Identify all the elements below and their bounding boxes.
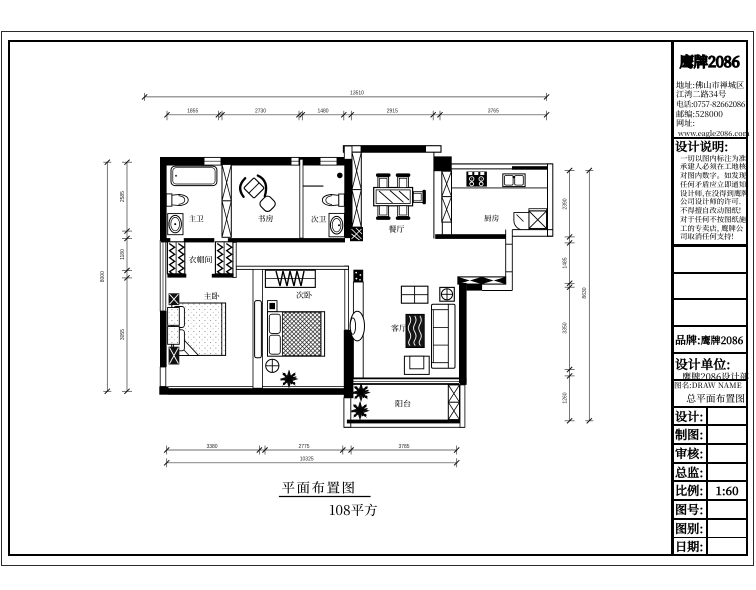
svg-text:主卫: 主卫 xyxy=(189,214,205,225)
svg-text:3055: 3055 xyxy=(120,329,126,340)
svg-text:108平方: 108平方 xyxy=(329,499,378,519)
svg-text:10325: 10325 xyxy=(300,457,314,463)
svg-text:1260: 1260 xyxy=(562,392,568,403)
svg-text:2775: 2775 xyxy=(298,444,309,450)
svg-text:2390: 2390 xyxy=(562,198,568,209)
svg-text:次卧: 次卧 xyxy=(296,290,312,301)
svg-text:2915: 2915 xyxy=(387,109,398,115)
svg-text:8630: 8630 xyxy=(582,287,588,298)
svg-text:3350: 3350 xyxy=(562,322,568,333)
svg-text:1855: 1855 xyxy=(187,109,198,115)
svg-text:3380: 3380 xyxy=(206,444,217,450)
svg-text:2730: 2730 xyxy=(255,109,266,115)
svg-text:衣帽间: 衣帽间 xyxy=(189,255,213,266)
svg-text:阳台: 阳台 xyxy=(395,399,411,410)
svg-text:2585: 2585 xyxy=(120,191,126,202)
svg-text:1180: 1180 xyxy=(120,249,126,260)
svg-text:3785: 3785 xyxy=(398,444,409,450)
svg-text:8000: 8000 xyxy=(100,271,106,282)
svg-text:13510: 13510 xyxy=(350,91,364,97)
svg-text:餐厅: 餐厅 xyxy=(389,224,405,235)
svg-text:厨房: 厨房 xyxy=(484,213,500,224)
svg-text:书房: 书房 xyxy=(258,214,274,225)
svg-text:平面布置图: 平面布置图 xyxy=(282,477,357,497)
svg-text:主卧: 主卧 xyxy=(204,291,220,302)
svg-text:客厅: 客厅 xyxy=(391,323,407,334)
svg-text:1485: 1485 xyxy=(562,257,568,268)
svg-text:3765: 3765 xyxy=(488,109,499,115)
svg-text:次卫: 次卫 xyxy=(311,214,327,225)
svg-text:1480: 1480 xyxy=(317,109,328,115)
